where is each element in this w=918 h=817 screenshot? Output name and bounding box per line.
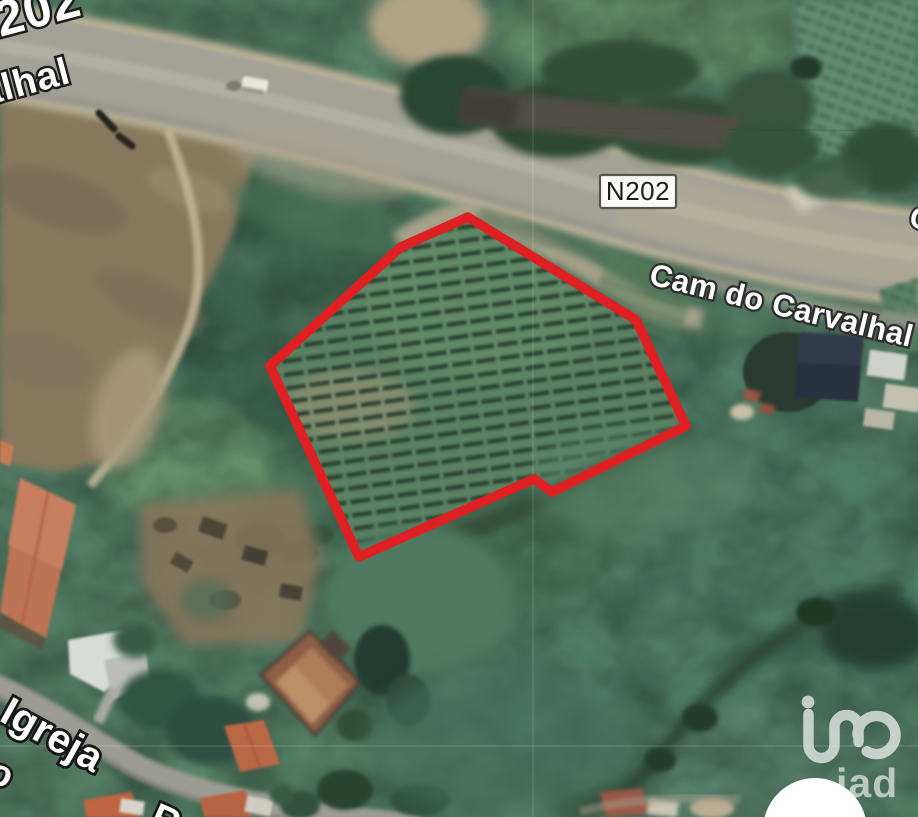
svg-text:N202: N202 [606,176,670,206]
